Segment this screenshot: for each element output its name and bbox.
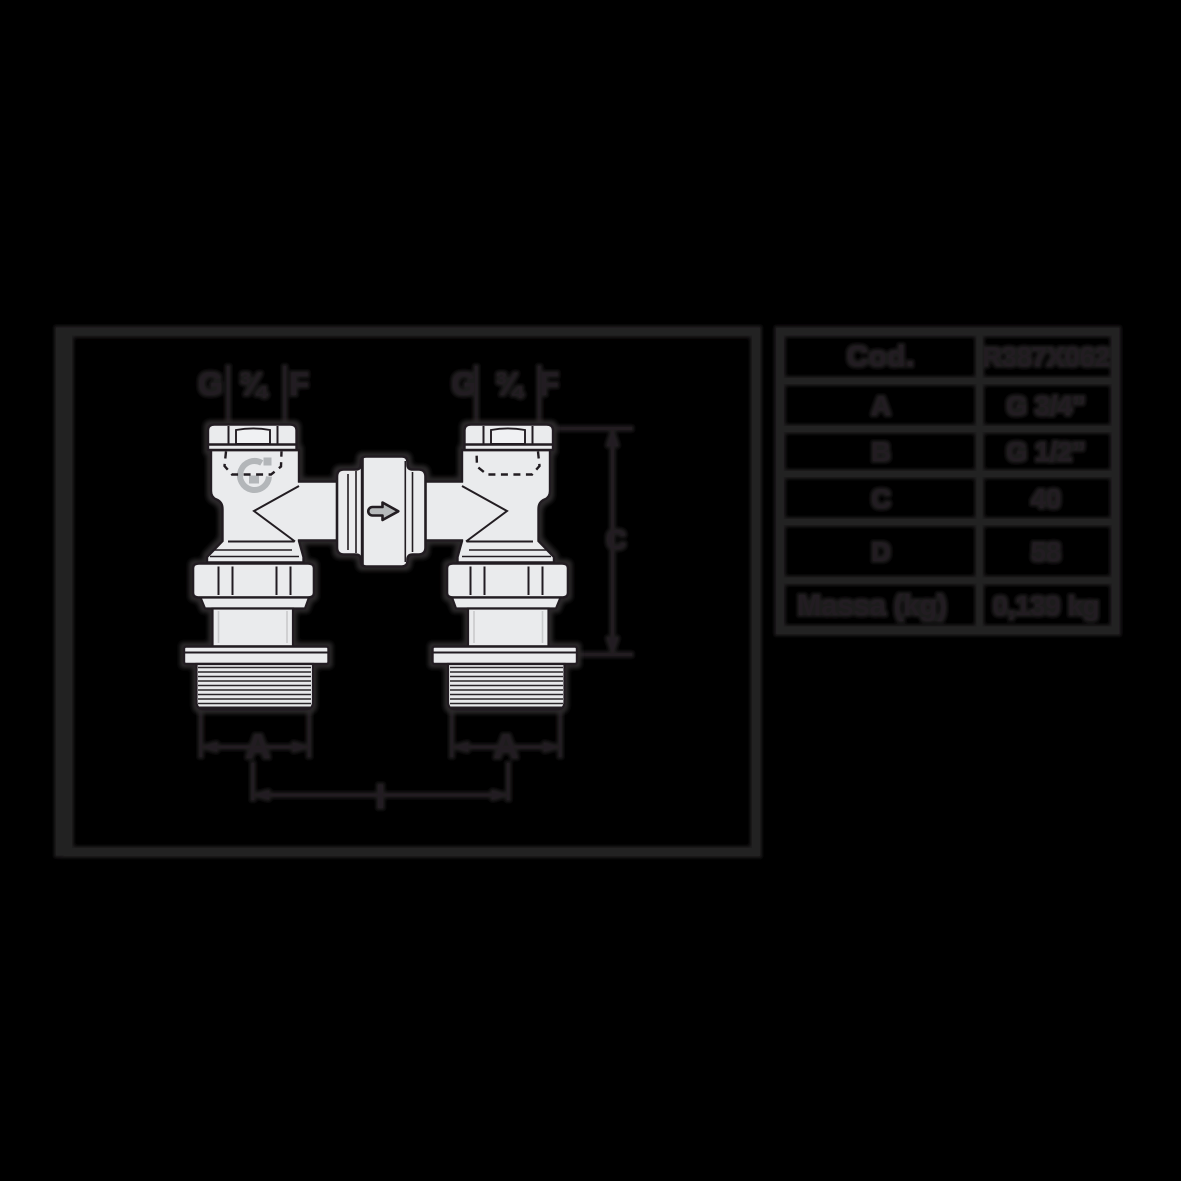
svg-text:D: D xyxy=(871,537,891,567)
svg-text:Massa (kg): Massa (kg) xyxy=(797,590,947,622)
svg-text:C: C xyxy=(606,524,626,555)
svg-text:¾: ¾ xyxy=(495,366,524,402)
svg-text:C: C xyxy=(871,484,891,514)
svg-text:A: A xyxy=(871,391,891,421)
svg-text:R387X062: R387X062 xyxy=(982,342,1110,372)
svg-text:A: A xyxy=(246,728,271,766)
svg-text:G: G xyxy=(198,366,223,402)
svg-text:¾: ¾ xyxy=(239,366,268,402)
svg-text:G: G xyxy=(452,366,477,402)
svg-text:F: F xyxy=(289,366,309,402)
svg-text:0,139 kg: 0,139 kg xyxy=(993,591,1100,621)
svg-text:Cod.: Cod. xyxy=(847,341,915,373)
svg-text:40: 40 xyxy=(1031,484,1061,514)
svg-text:58: 58 xyxy=(1031,537,1061,567)
svg-text:F: F xyxy=(539,366,559,402)
svg-text:G 1/2”: G 1/2” xyxy=(1006,437,1086,467)
svg-text:G 3/4”: G 3/4” xyxy=(1006,391,1086,421)
svg-text:A: A xyxy=(494,728,519,766)
svg-text:I: I xyxy=(376,778,385,816)
svg-text:B: B xyxy=(871,437,891,467)
